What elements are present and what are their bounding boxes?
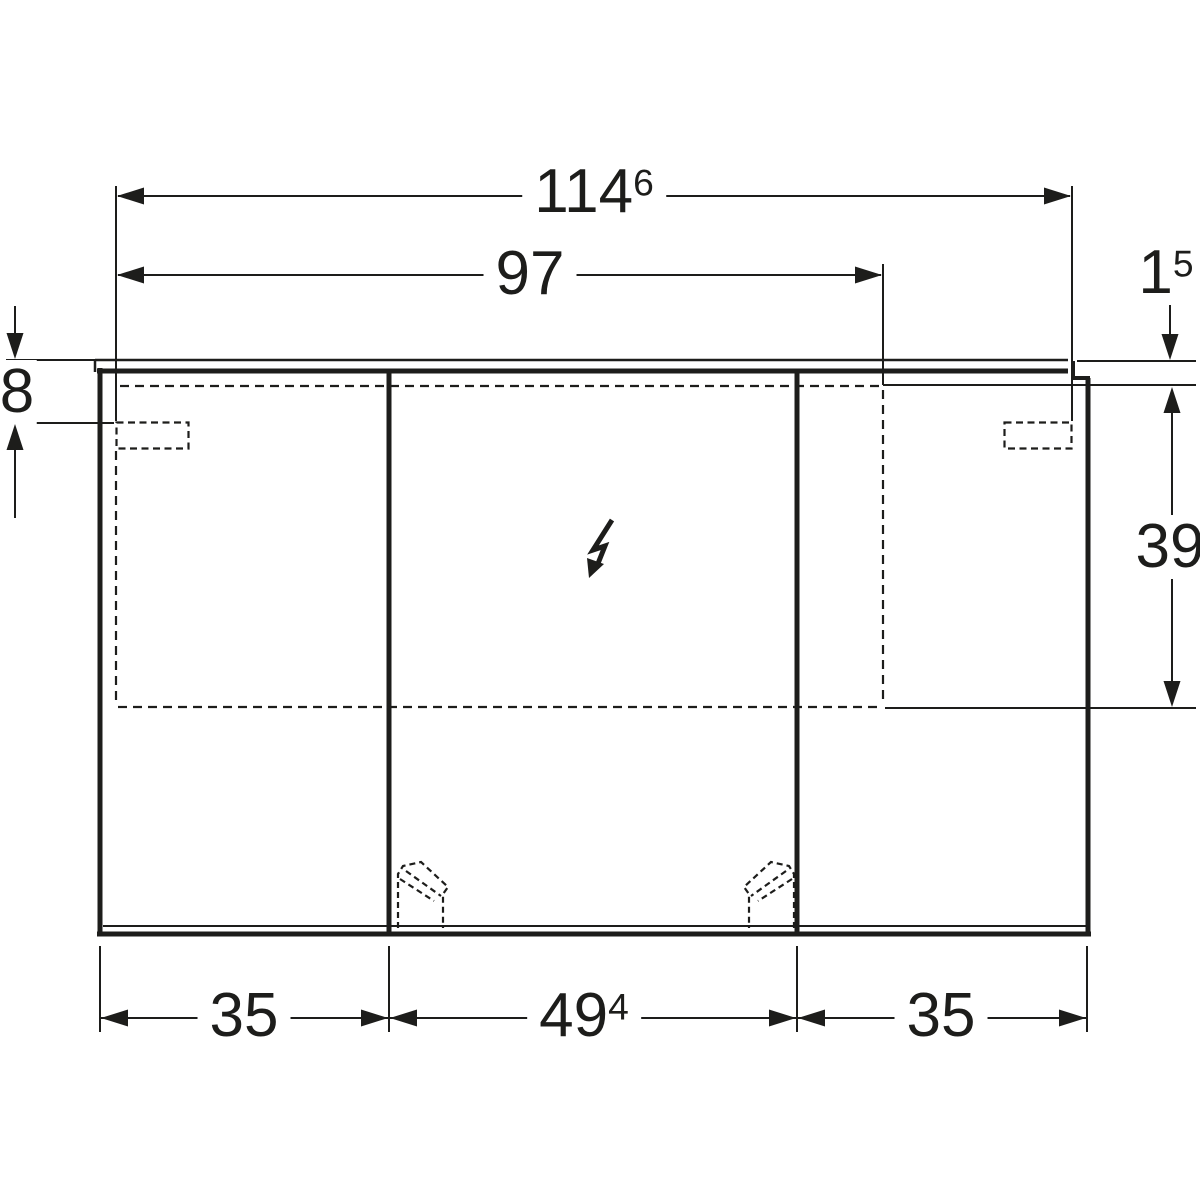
dim-top-profile: [1162, 298, 1179, 360]
arrow-up-icon: [7, 424, 24, 450]
lightning-bolt-icon: [587, 520, 612, 578]
door-grip-left: [398, 862, 448, 928]
arrow-right-icon: [855, 267, 882, 284]
arrow-up-icon: [1164, 387, 1181, 413]
arrow-left-icon: [117, 188, 144, 205]
dim-label-top-profile: 15: [1135, 241, 1196, 305]
arrow-down-icon: [7, 333, 24, 359]
arrow-left-icon: [798, 1010, 825, 1027]
arrow-right-icon: [1044, 188, 1071, 205]
hidden-edges: [116, 386, 1072, 928]
arrow-right-icon: [361, 1010, 388, 1027]
arrow-down-icon: [1162, 334, 1179, 360]
dim-label-door-right: 35: [895, 984, 988, 1048]
dimension-extension-lines: [6, 186, 1196, 1032]
cabinet-structure: [95, 359, 1091, 936]
arrow-right-icon: [769, 1010, 796, 1027]
arrow-left-icon: [390, 1010, 417, 1027]
mounting-bracket-left: [117, 423, 189, 449]
mounting-bracket-right: [1005, 423, 1072, 449]
arrow-down-icon: [1164, 681, 1181, 707]
door-grip-right: [744, 862, 794, 928]
technical-drawing-canvas: 1146 97 15 8 39 35 494 35: [0, 0, 1200, 1200]
dim-label-side-height: 39: [1133, 515, 1200, 579]
dim-label-door-center: 494: [527, 984, 641, 1048]
arrow-left-icon: [101, 1010, 128, 1027]
arrow-right-icon: [1059, 1010, 1086, 1027]
dim-label-top-offset: 8: [0, 360, 37, 424]
dim-label-total-width: 1146: [522, 160, 666, 224]
arrow-left-icon: [117, 267, 144, 284]
dim-label-upper-width: 97: [484, 242, 577, 306]
dim-label-door-left: 35: [198, 984, 291, 1048]
